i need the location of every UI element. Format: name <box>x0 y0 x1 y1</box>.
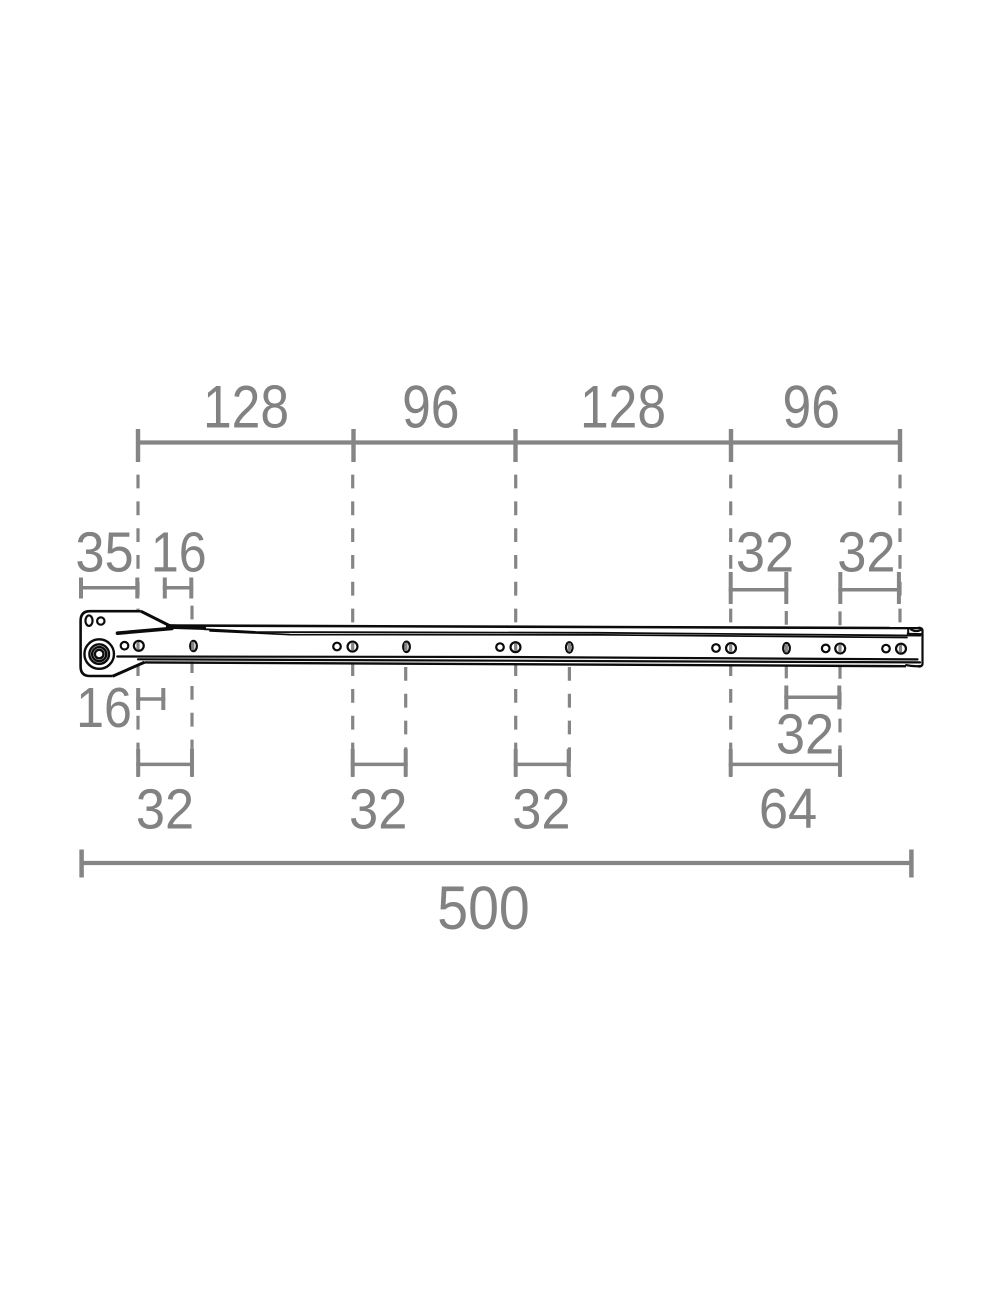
svg-text:16: 16 <box>151 521 207 585</box>
svg-text:32: 32 <box>512 776 570 841</box>
svg-text:128: 128 <box>203 373 289 441</box>
svg-text:32: 32 <box>837 519 895 584</box>
svg-text:32: 32 <box>136 776 194 841</box>
svg-text:500: 500 <box>437 875 530 943</box>
svg-text:32: 32 <box>776 701 834 766</box>
svg-text:96: 96 <box>402 373 459 441</box>
svg-text:32: 32 <box>349 776 407 841</box>
svg-text:32: 32 <box>736 519 794 584</box>
svg-text:64: 64 <box>759 776 817 841</box>
svg-text:35: 35 <box>75 519 133 584</box>
svg-text:96: 96 <box>783 373 840 441</box>
svg-text:128: 128 <box>580 373 666 441</box>
svg-text:16: 16 <box>76 676 132 740</box>
